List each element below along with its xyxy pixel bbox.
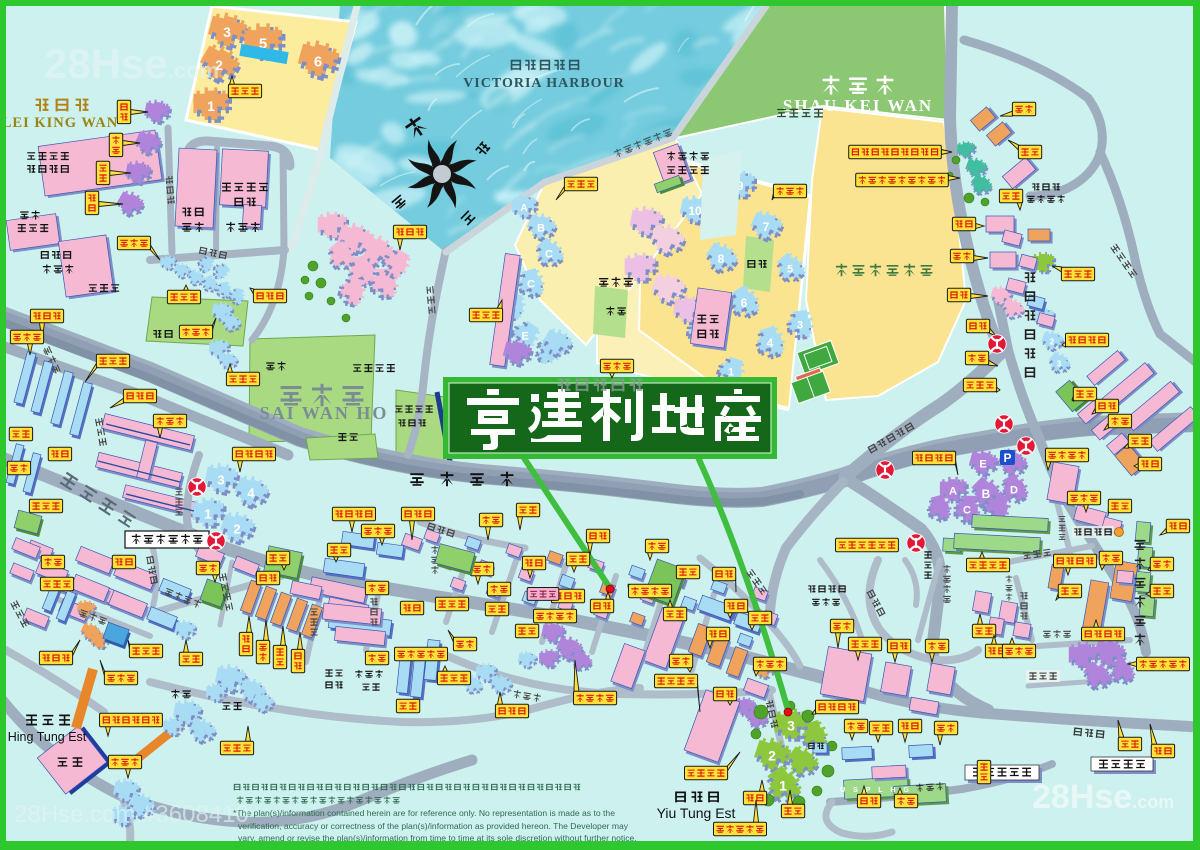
svg-text:VICTORIA HARBOUR: VICTORIA HARBOUR [463, 76, 625, 91]
svg-text:3: 3 [223, 24, 231, 40]
svg-text:2: 2 [233, 521, 240, 536]
svg-text:3: 3 [1057, 359, 1062, 368]
svg-text:5: 5 [787, 264, 793, 276]
svg-text:verification, accuracy or cor: verification, accuracy or correctness of… [238, 821, 629, 831]
svg-text:E: E [521, 331, 528, 343]
svg-text:SAI WAN HO: SAI WAN HO [260, 403, 389, 423]
svg-text:6: 6 [314, 54, 322, 71]
svg-text:3: 3 [217, 472, 224, 487]
svg-text:4: 4 [767, 336, 774, 350]
svg-text:*The plan(s)/information conta: *The plan(s)/information contained herei… [233, 808, 615, 818]
svg-text:8: 8 [718, 252, 725, 266]
svg-text:P: P [1003, 451, 1011, 465]
svg-text:2: 2 [768, 748, 776, 764]
svg-text:A: A [520, 203, 527, 214]
svg-text:C: C [545, 249, 553, 261]
svg-text:28Hse.com #3608410: 28Hse.com #3608410 [14, 801, 249, 828]
svg-text:1: 1 [207, 98, 215, 114]
svg-text:LEI KING WAN: LEI KING WAN [2, 115, 118, 131]
svg-text:Yiu Tung Est: Yiu Tung Est [657, 805, 736, 821]
svg-text:Hing Tung Est: Hing Tung Est [8, 730, 87, 744]
svg-text:B: B [537, 223, 545, 235]
svg-text:E: E [979, 459, 986, 471]
svg-text:6: 6 [741, 296, 748, 310]
svg-text:4: 4 [247, 485, 255, 500]
svg-text:1: 1 [728, 367, 734, 379]
svg-text:C: C [527, 279, 535, 291]
svg-text:10: 10 [688, 204, 702, 218]
svg-text:7: 7 [763, 220, 770, 234]
svg-text:3: 3 [797, 320, 803, 332]
svg-text:A: A [949, 486, 957, 498]
svg-text:1: 1 [779, 778, 787, 794]
svg-text:C: C [963, 505, 971, 517]
svg-text:2: 2 [1050, 337, 1055, 346]
svg-text:D: D [1010, 485, 1018, 497]
svg-text:B: B [982, 487, 991, 501]
svg-text:3: 3 [787, 718, 795, 734]
svg-text:1: 1 [204, 506, 211, 521]
